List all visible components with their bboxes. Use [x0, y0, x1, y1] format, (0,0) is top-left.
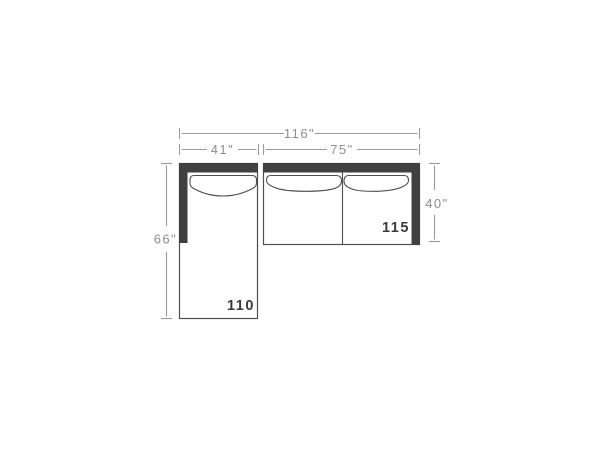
- dim-chaise-depth: 66": [154, 164, 178, 319]
- dim-chaise-width: 41": [180, 142, 259, 157]
- dim-label-total-width: 116": [284, 126, 315, 141]
- chaise-left-arm: [179, 163, 188, 243]
- chaise-unit-label: 110: [227, 298, 255, 314]
- sofa-unit: 115: [263, 163, 420, 245]
- sofa-right-arm: [412, 163, 421, 245]
- chaise-back-frame: [179, 163, 258, 173]
- sofa-back-cushion-left: [267, 176, 342, 192]
- dim-sofa-depth: 40": [425, 164, 449, 242]
- dim-total-width: 116": [180, 126, 420, 141]
- dim-label-chaise-width: 41": [211, 142, 235, 157]
- dim-label-chaise-depth: 66": [154, 232, 178, 247]
- dim-label-sofa-depth: 40": [425, 196, 449, 211]
- chaise-unit: 110: [179, 163, 258, 319]
- sofa-unit-label: 115: [382, 220, 410, 236]
- sofa-dimension-diagram: 116" 41" 75" 66": [0, 0, 600, 450]
- diagram-canvas: 116" 41" 75" 66": [0, 0, 600, 450]
- dim-label-sofa-width: 75": [330, 142, 354, 157]
- sofa-back-frame: [263, 163, 420, 173]
- dim-sofa-width: 75": [264, 142, 420, 157]
